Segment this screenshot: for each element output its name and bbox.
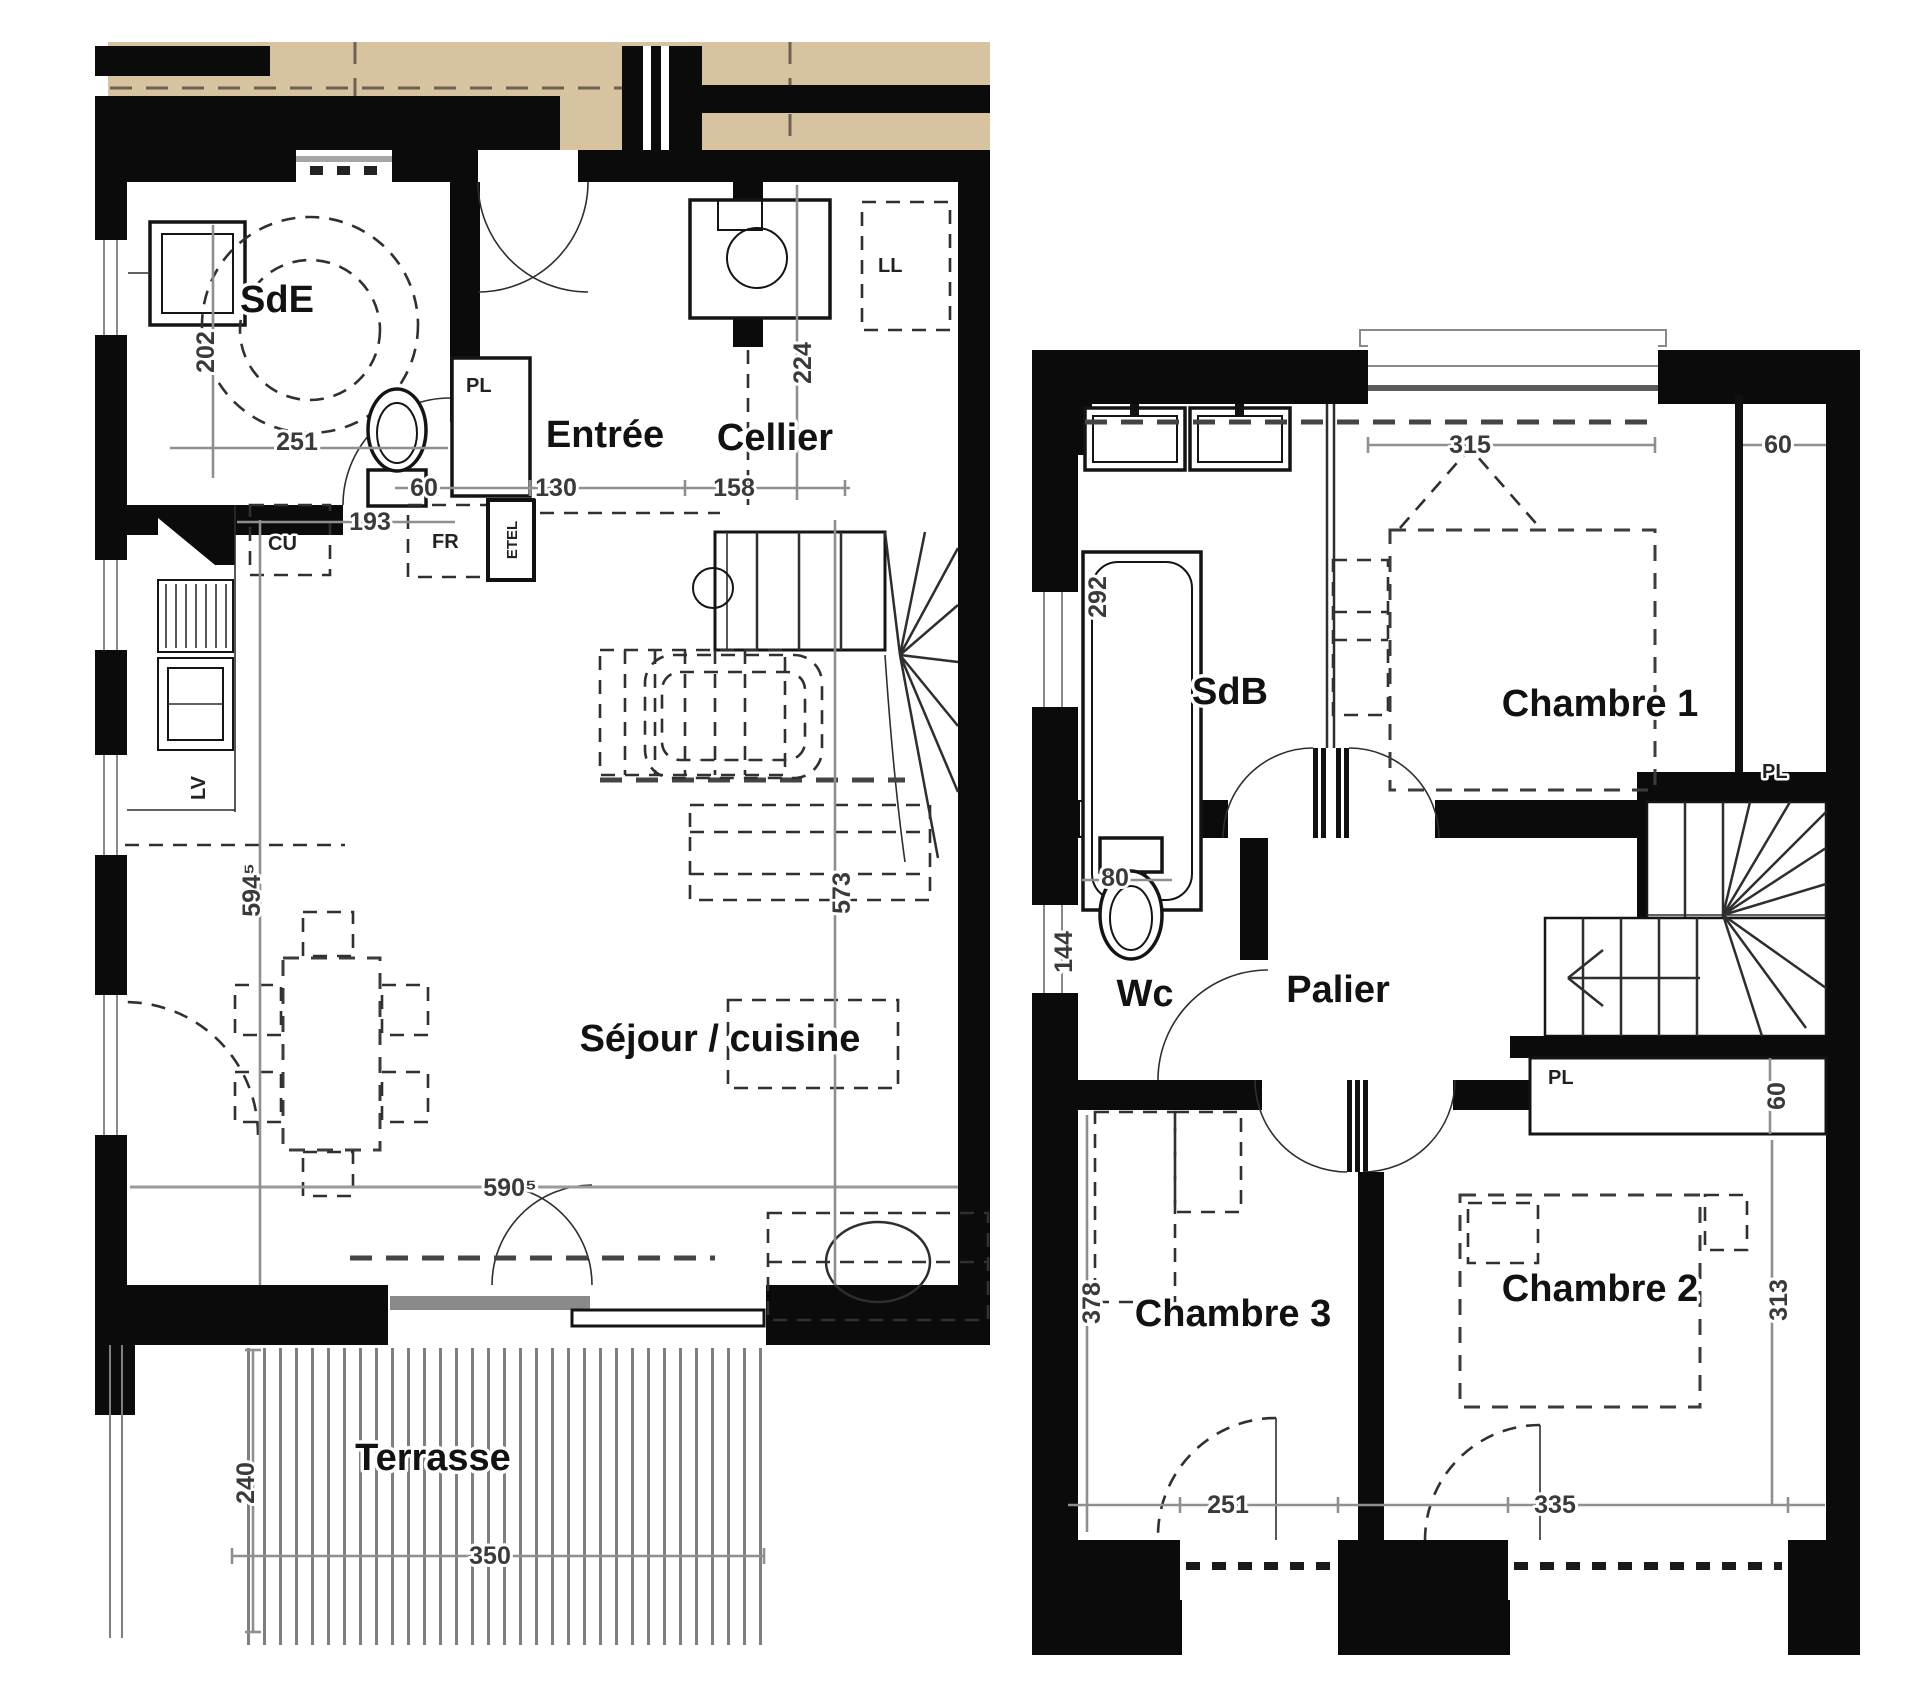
dim-chambre3-window: 251: [1207, 1491, 1249, 1519]
dim-wc-width: 80: [1101, 864, 1129, 892]
dim-sdb-height: 292: [1084, 576, 1112, 618]
dim-chambre2-height: 313: [1765, 1279, 1793, 1321]
label-entree: Entrée: [546, 414, 664, 456]
dim-chambre1-window: 315: [1449, 431, 1491, 459]
dim-closet: 60: [410, 474, 438, 502]
dim-cellier-depth: 224: [789, 342, 817, 384]
terrasse-deck: [110, 1345, 764, 1645]
label-chambre3: Chambre 3: [1135, 1293, 1331, 1335]
label-palier: Palier: [1286, 969, 1390, 1011]
closet-pl-label: PL: [466, 375, 492, 397]
label-pl-palier: PL: [1548, 1067, 1574, 1089]
dim-terrasse-depth: 240: [232, 1462, 260, 1504]
label-cellier: Cellier: [717, 417, 833, 459]
kitchen-fr-label: FR: [432, 531, 459, 553]
dim-wc-depth: 144: [1050, 931, 1078, 973]
dim-pl-palier-depth: 60: [1763, 1082, 1791, 1110]
cellier-ll-label: LL: [878, 255, 902, 277]
kitchen-lv-label: LV: [188, 775, 210, 800]
floor-plans-svg: PL CU FR ETEL LV LL: [0, 0, 1920, 1703]
label-sde: SdE: [240, 279, 314, 321]
sdb-bathroom: [1083, 404, 1290, 910]
label-sejour-cuisine: Séjour / cuisine: [580, 1018, 861, 1060]
kitchen-cu-label: CU: [268, 533, 297, 555]
label-chambre2: Chambre 2: [1502, 1268, 1698, 1310]
label-terrasse: Terrasse: [355, 1437, 511, 1479]
dim-chambre2-window: 335: [1534, 1491, 1576, 1519]
first-floor-plan: 292 315 60 80 144 378 251 335 313 60 SdB…: [1032, 330, 1860, 1655]
cellier-fixtures: LL: [690, 200, 950, 330]
dim-sde-height: 202: [192, 331, 220, 373]
dim-sde-width: 251: [276, 428, 318, 456]
dim-chambre3-height: 378: [1078, 1282, 1106, 1324]
dim-pl-depth: 60: [1764, 431, 1792, 459]
dim-interior-height: 594⁵: [238, 863, 266, 916]
wc-fixtures: [1100, 838, 1162, 959]
label-pl-chambre1: PL: [1762, 761, 1788, 783]
ground-windows: [95, 150, 766, 1345]
staircase-ground: [600, 532, 958, 862]
label-wc: Wc: [1117, 973, 1174, 1015]
dim-cellier: 158: [713, 474, 755, 502]
ground-floor-plan: PL CU FR ETEL LV LL: [95, 42, 990, 1645]
floor-plan-canvas: PL CU FR ETEL LV LL: [0, 0, 1920, 1703]
dim-living-height: 573: [828, 872, 856, 914]
dim-kitchen: 193: [349, 508, 391, 536]
label-chambre1: Chambre 1: [1502, 683, 1698, 725]
kitchen-etel-label: ETEL: [504, 521, 521, 559]
dim-bay-width: 590⁵: [483, 1174, 536, 1202]
dim-terrasse-width: 350: [469, 1542, 511, 1570]
living-furniture: [125, 655, 988, 1320]
label-sdb: SdB: [1192, 671, 1268, 713]
kitchen: CU FR ETEL LV: [125, 500, 534, 845]
dim-entree: 130: [535, 474, 577, 502]
